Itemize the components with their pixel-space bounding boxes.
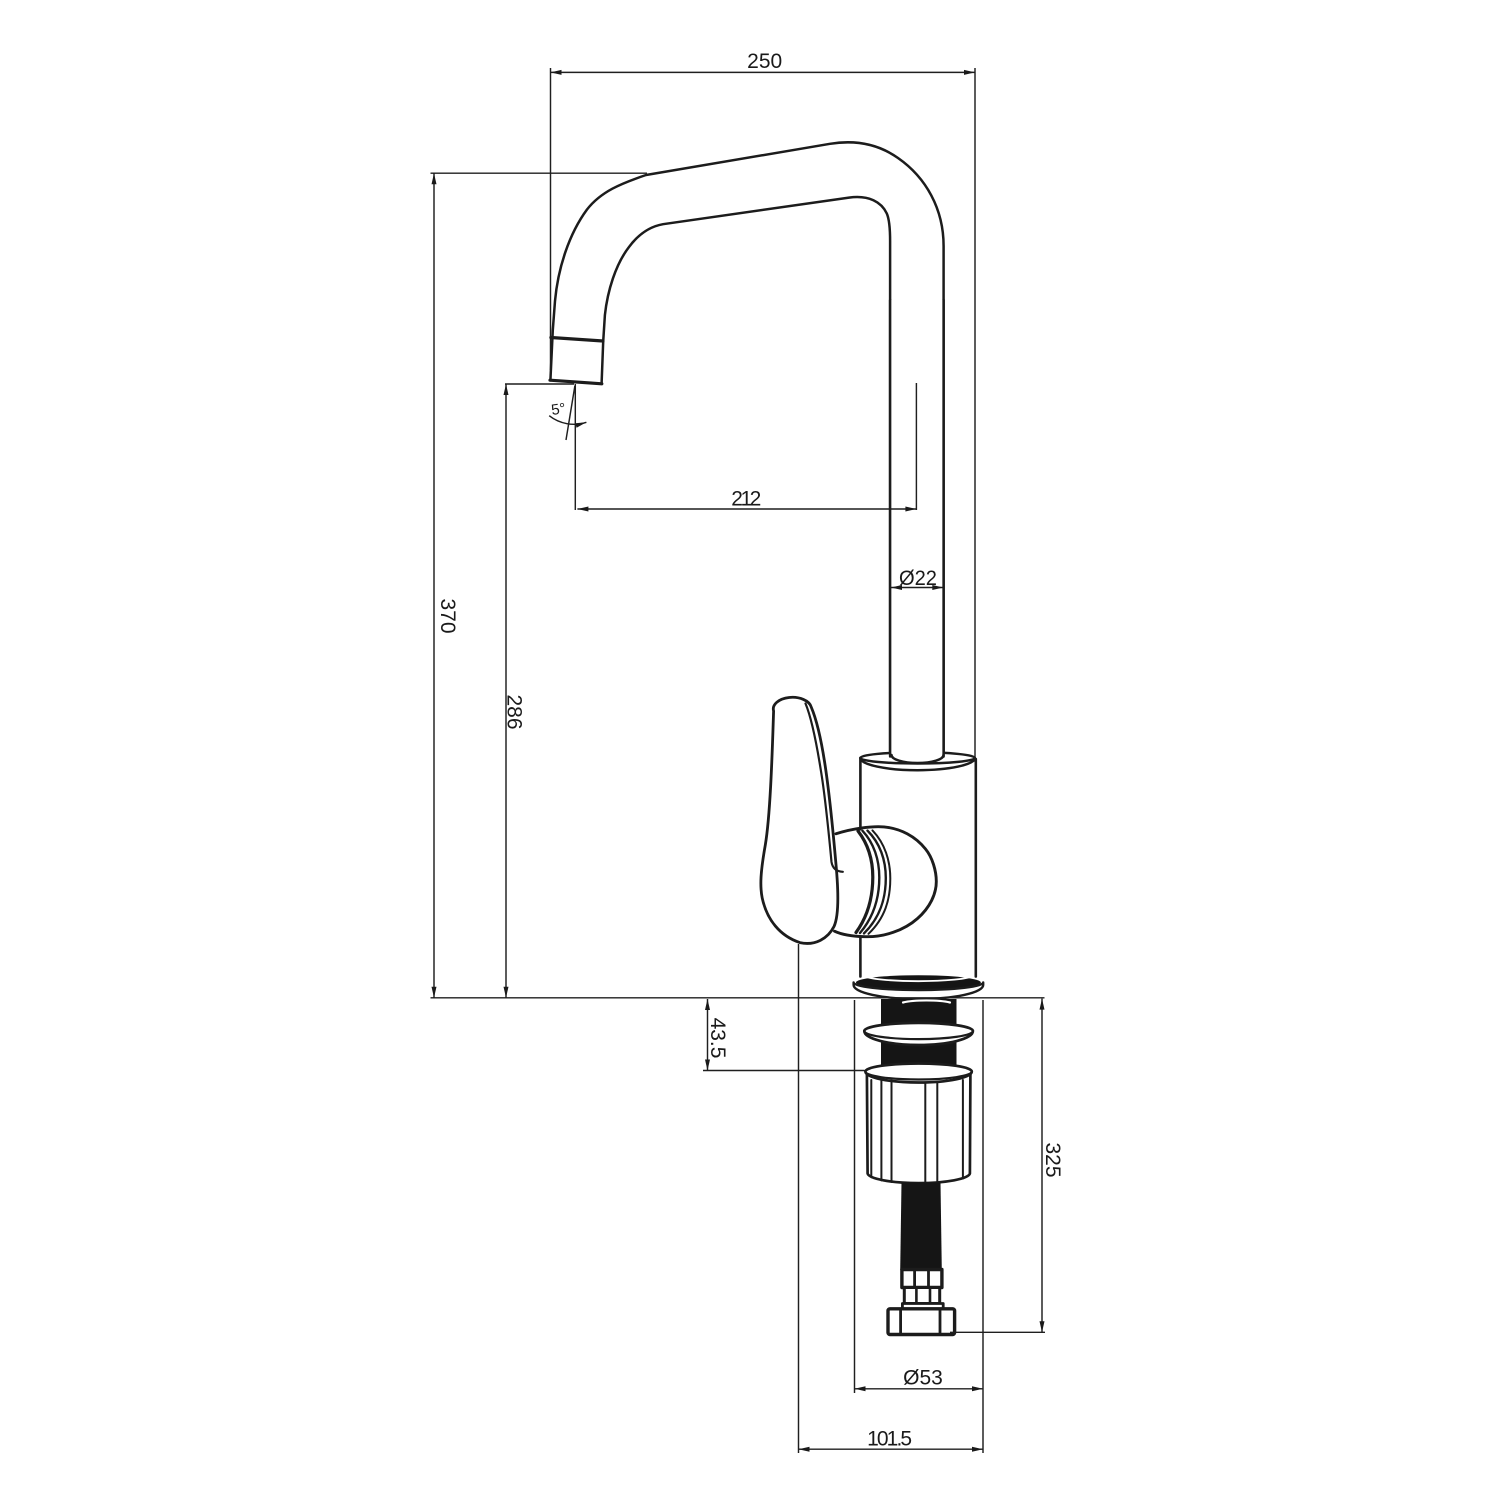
svg-text:370: 370 [436,598,459,633]
svg-text:101.5: 101.5 [867,1428,912,1451]
svg-text:250: 250 [747,50,782,73]
svg-text:Ø53: Ø53 [903,1367,943,1390]
svg-text:286: 286 [503,694,526,729]
svg-text:325: 325 [1041,1142,1064,1177]
svg-text:5°: 5° [550,400,567,419]
svg-text:Ø22: Ø22 [899,567,937,590]
svg-text:43.5: 43.5 [706,1018,729,1059]
svg-text:212: 212 [731,488,761,511]
